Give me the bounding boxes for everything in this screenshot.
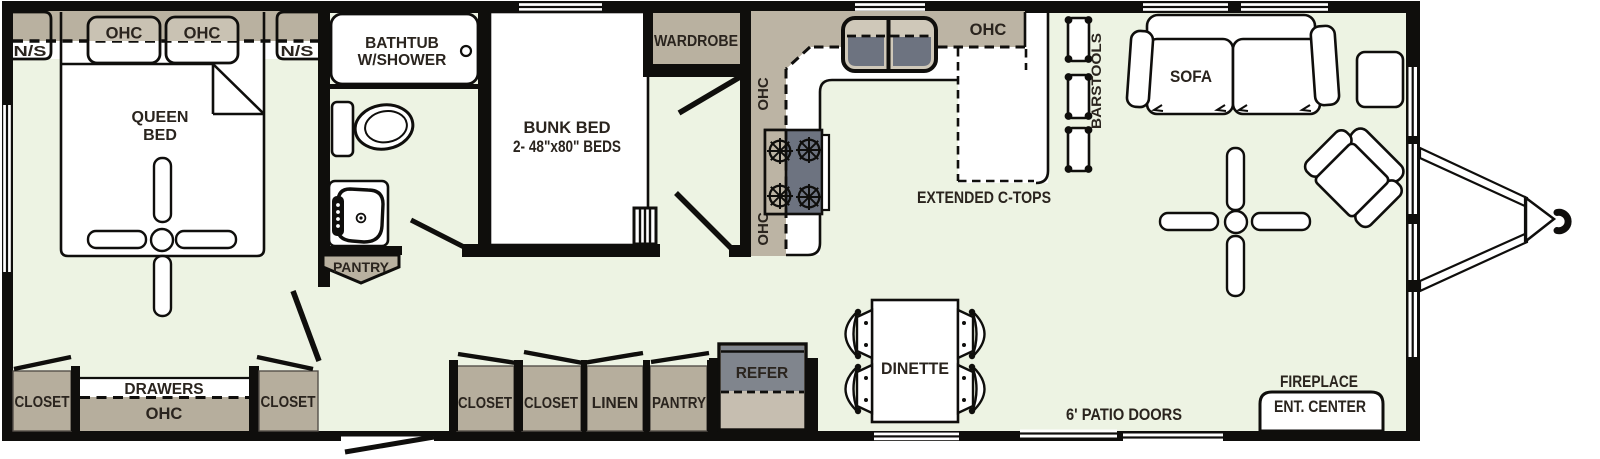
svg-text:BARSTOOLS: BARSTOOLS <box>1088 33 1104 129</box>
svg-text:N/S: N/S <box>281 43 314 60</box>
svg-text:N/S: N/S <box>14 43 47 60</box>
svg-text:OHC: OHC <box>184 25 221 43</box>
svg-text:CLOSET: CLOSET <box>458 395 512 412</box>
svg-text:2- 48"x80" BEDS: 2- 48"x80" BEDS <box>513 138 621 156</box>
svg-text:PANTRY: PANTRY <box>652 395 707 412</box>
svg-text:LINEN: LINEN <box>592 395 639 412</box>
svg-text:EXTENDED C-TOPS: EXTENDED C-TOPS <box>917 189 1051 207</box>
svg-text:6' PATIO DOORS: 6' PATIO DOORS <box>1066 406 1182 424</box>
svg-text:ENT. CENTER: ENT. CENTER <box>1274 398 1366 416</box>
svg-text:SOFA: SOFA <box>1170 68 1212 86</box>
svg-text:OHC: OHC <box>755 77 772 111</box>
svg-text:DRAWERS: DRAWERS <box>124 381 203 398</box>
svg-text:BATHTUB: BATHTUB <box>365 35 439 52</box>
svg-text:WARDROBE: WARDROBE <box>654 33 738 50</box>
svg-text:BED: BED <box>143 127 177 144</box>
svg-text:CLOSET: CLOSET <box>524 395 578 412</box>
svg-text:W/SHOWER: W/SHOWER <box>358 52 447 69</box>
svg-text:BUNK BED: BUNK BED <box>523 119 610 137</box>
svg-text:DINETTE: DINETTE <box>881 359 949 378</box>
svg-text:REFER: REFER <box>736 365 789 382</box>
svg-text:OHC: OHC <box>146 405 183 423</box>
svg-text:OHC: OHC <box>755 212 772 246</box>
svg-text:FIREPLACE: FIREPLACE <box>1280 373 1358 391</box>
svg-text:CLOSET: CLOSET <box>261 394 316 411</box>
svg-text:QUEEN: QUEEN <box>132 109 189 126</box>
svg-text:PANTRY: PANTRY <box>333 259 390 275</box>
svg-text:CLOSET: CLOSET <box>15 394 70 411</box>
svg-text:OHC: OHC <box>106 25 143 43</box>
svg-text:OHC: OHC <box>970 21 1007 39</box>
